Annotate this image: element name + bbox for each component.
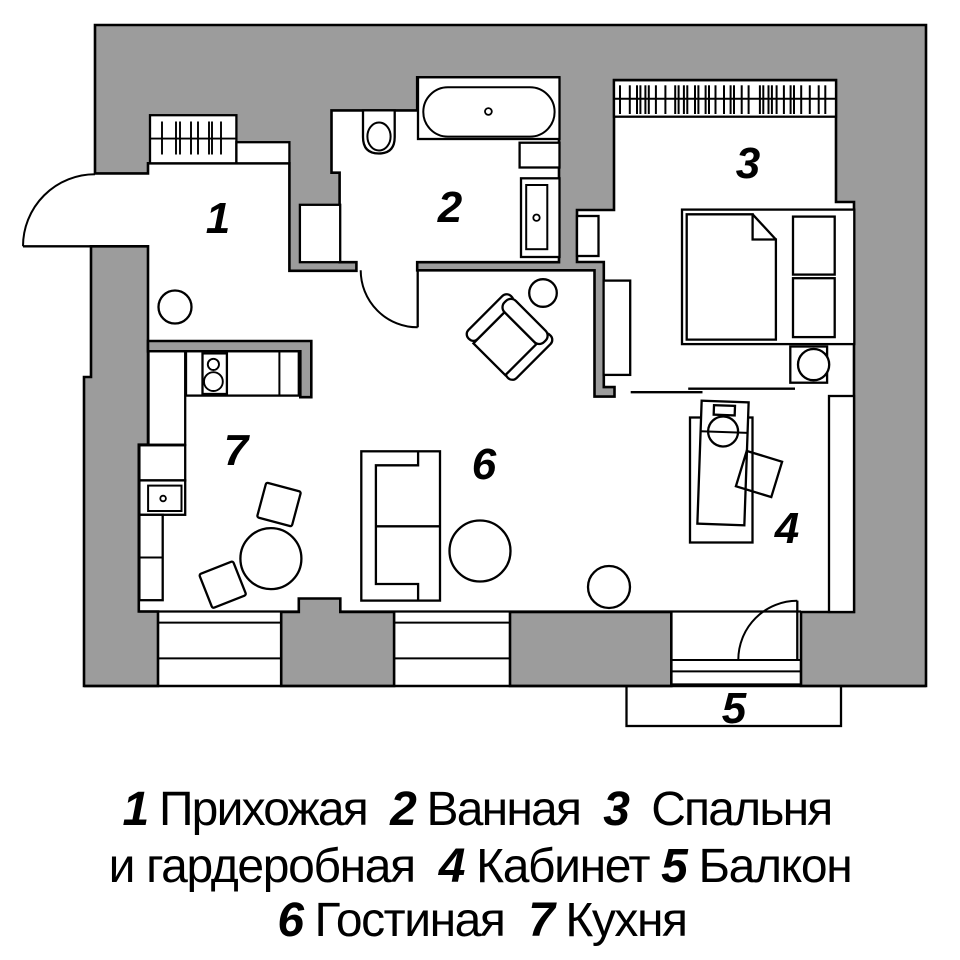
svg-text:2: 2 bbox=[437, 183, 463, 232]
svg-text:4: 4 bbox=[774, 504, 799, 553]
svg-text:6: 6 bbox=[472, 440, 497, 489]
svg-text:3: 3 bbox=[736, 139, 760, 188]
svg-text:1: 1 bbox=[206, 194, 230, 243]
svg-text:и гардеробная 4 Кабинет 5 Бал: и гардеробная 4 Кабинет 5 Балкон bbox=[109, 840, 852, 893]
svg-text:7: 7 bbox=[224, 426, 251, 475]
svg-text:6 Гостиная 7 Кухня: 6 Гостиная 7 Кухня bbox=[277, 894, 686, 947]
svg-text:5: 5 bbox=[722, 684, 747, 733]
svg-text:1 Прихожая 2 Ванная 3 Спаль: 1 Прихожая 2 Ванная 3 Спальня bbox=[123, 783, 832, 836]
